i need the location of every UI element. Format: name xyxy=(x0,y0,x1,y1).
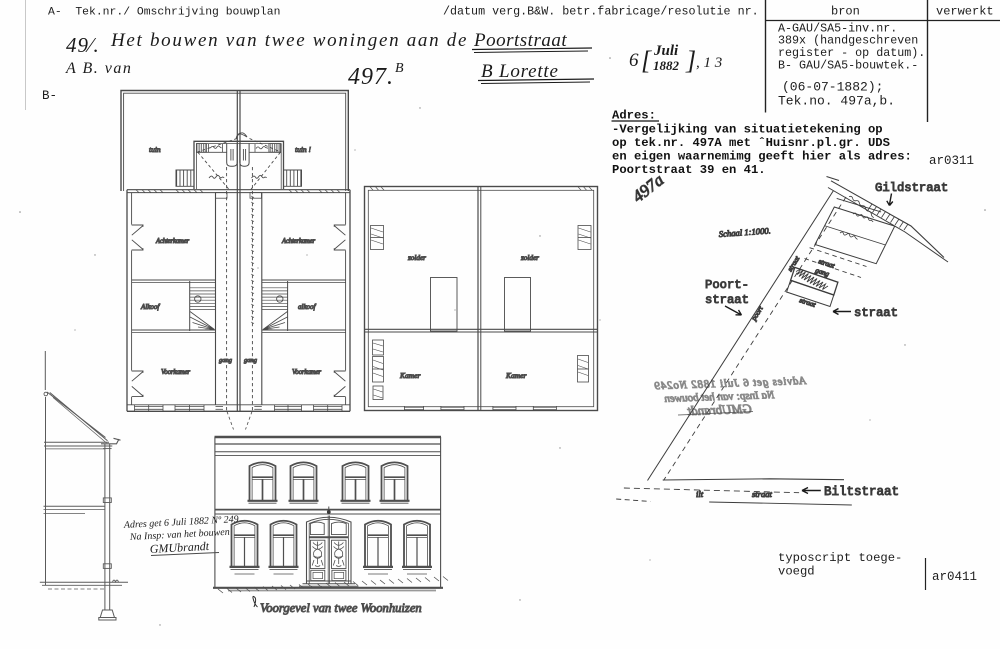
svg-text:Alkoof: Alkoof xyxy=(140,303,160,311)
svg-text:tuin: tuin xyxy=(149,145,161,154)
svg-text:verwerkt: verwerkt xyxy=(936,5,994,19)
svg-text:straat: straat xyxy=(854,306,898,320)
svg-text:alkoof: alkoof xyxy=(298,303,317,311)
svg-text:tuin !: tuin ! xyxy=(295,145,312,154)
svg-text:]: ] xyxy=(685,46,696,75)
svg-text:en eigen waarnemimg geeft hier: en eigen waarnemimg geeft hier als adres… xyxy=(612,150,912,164)
svg-text:Biltstraat: Biltstraat xyxy=(824,485,899,499)
svg-text:GMUbrandt: GMUbrandt xyxy=(687,401,752,418)
svg-text:Voorkamer: Voorkamer xyxy=(161,368,190,376)
svg-text:Juli: Juli xyxy=(653,43,679,59)
svg-text:typoscript toege-: typoscript toege- xyxy=(778,551,902,565)
svg-text:/datum verg.B&W. betr.fabricag: /datum verg.B&W. betr.fabricage/resoluti… xyxy=(443,5,759,19)
svg-text:Gildstraat: Gildstraat xyxy=(875,181,948,195)
svg-text:A B. van: A B. van xyxy=(65,60,132,77)
svg-text:Achterkamer: Achterkamer xyxy=(281,238,315,245)
svg-text:, 1 3: , 1 3 xyxy=(696,55,722,71)
svg-text:6: 6 xyxy=(629,50,639,71)
svg-text:ar0311: ar0311 xyxy=(929,154,974,168)
svg-text:Poortstraat: Poortstraat xyxy=(473,30,567,51)
svg-text:B Lorette: B Lorette xyxy=(481,61,559,82)
svg-text:straat: straat xyxy=(705,293,749,307)
svg-text:ar0411: ar0411 xyxy=(932,570,977,584)
svg-text:B- GAU/SA5-bouwtek.-: B- GAU/SA5-bouwtek.- xyxy=(778,59,918,73)
svg-text:ilt: ilt xyxy=(696,489,704,499)
svg-text:op tek.nr. 497A met ˆHuisnr.pl: op tek.nr. 497A met ˆHuisnr.pl.gr. UDS xyxy=(612,136,890,150)
svg-text:zolder: zolder xyxy=(520,254,539,262)
svg-text:Tek.no. 497a,b.: Tek.no. 497a,b. xyxy=(778,94,895,109)
svg-text:Voorkamer: Voorkamer xyxy=(292,368,321,376)
svg-text:Kamer: Kamer xyxy=(505,371,526,380)
svg-text:-Vergelijking van situatieteke: -Vergelijking van situatietekening op xyxy=(612,123,883,137)
svg-text:Voorgevel van twee Woonhuizen: Voorgevel van twee Woonhuizen xyxy=(260,601,422,615)
svg-text:zolder: zolder xyxy=(407,254,426,262)
svg-text:Poort-: Poort- xyxy=(705,278,749,292)
svg-text:Achterkamer: Achterkamer xyxy=(155,238,189,245)
svg-text:gang: gang xyxy=(219,357,233,364)
svg-text:(06-07-1882);: (06-07-1882); xyxy=(782,80,883,95)
svg-text:Het bouwen van twee woningen a: Het bouwen van twee woningen aan de xyxy=(110,30,468,51)
svg-text:1882: 1882 xyxy=(653,58,680,73)
svg-text:49⁄.: 49⁄. xyxy=(66,33,100,57)
svg-text:voegd: voegd xyxy=(778,565,815,579)
svg-text:B: B xyxy=(395,61,404,76)
svg-text:497.: 497. xyxy=(348,64,394,90)
svg-text:Poortstraat 39 en 41.: Poortstraat 39 en 41. xyxy=(612,163,766,177)
svg-text:A- Tek.nr./ Omschrijving bouw: A- Tek.nr./ Omschrijving bouwplan xyxy=(48,7,280,19)
svg-text:straat: straat xyxy=(752,489,772,499)
svg-text:Kamer: Kamer xyxy=(399,371,420,380)
svg-text:gang: gang xyxy=(244,357,258,364)
svg-text:B-: B- xyxy=(42,89,57,103)
svg-text:bron: bron xyxy=(831,5,860,19)
